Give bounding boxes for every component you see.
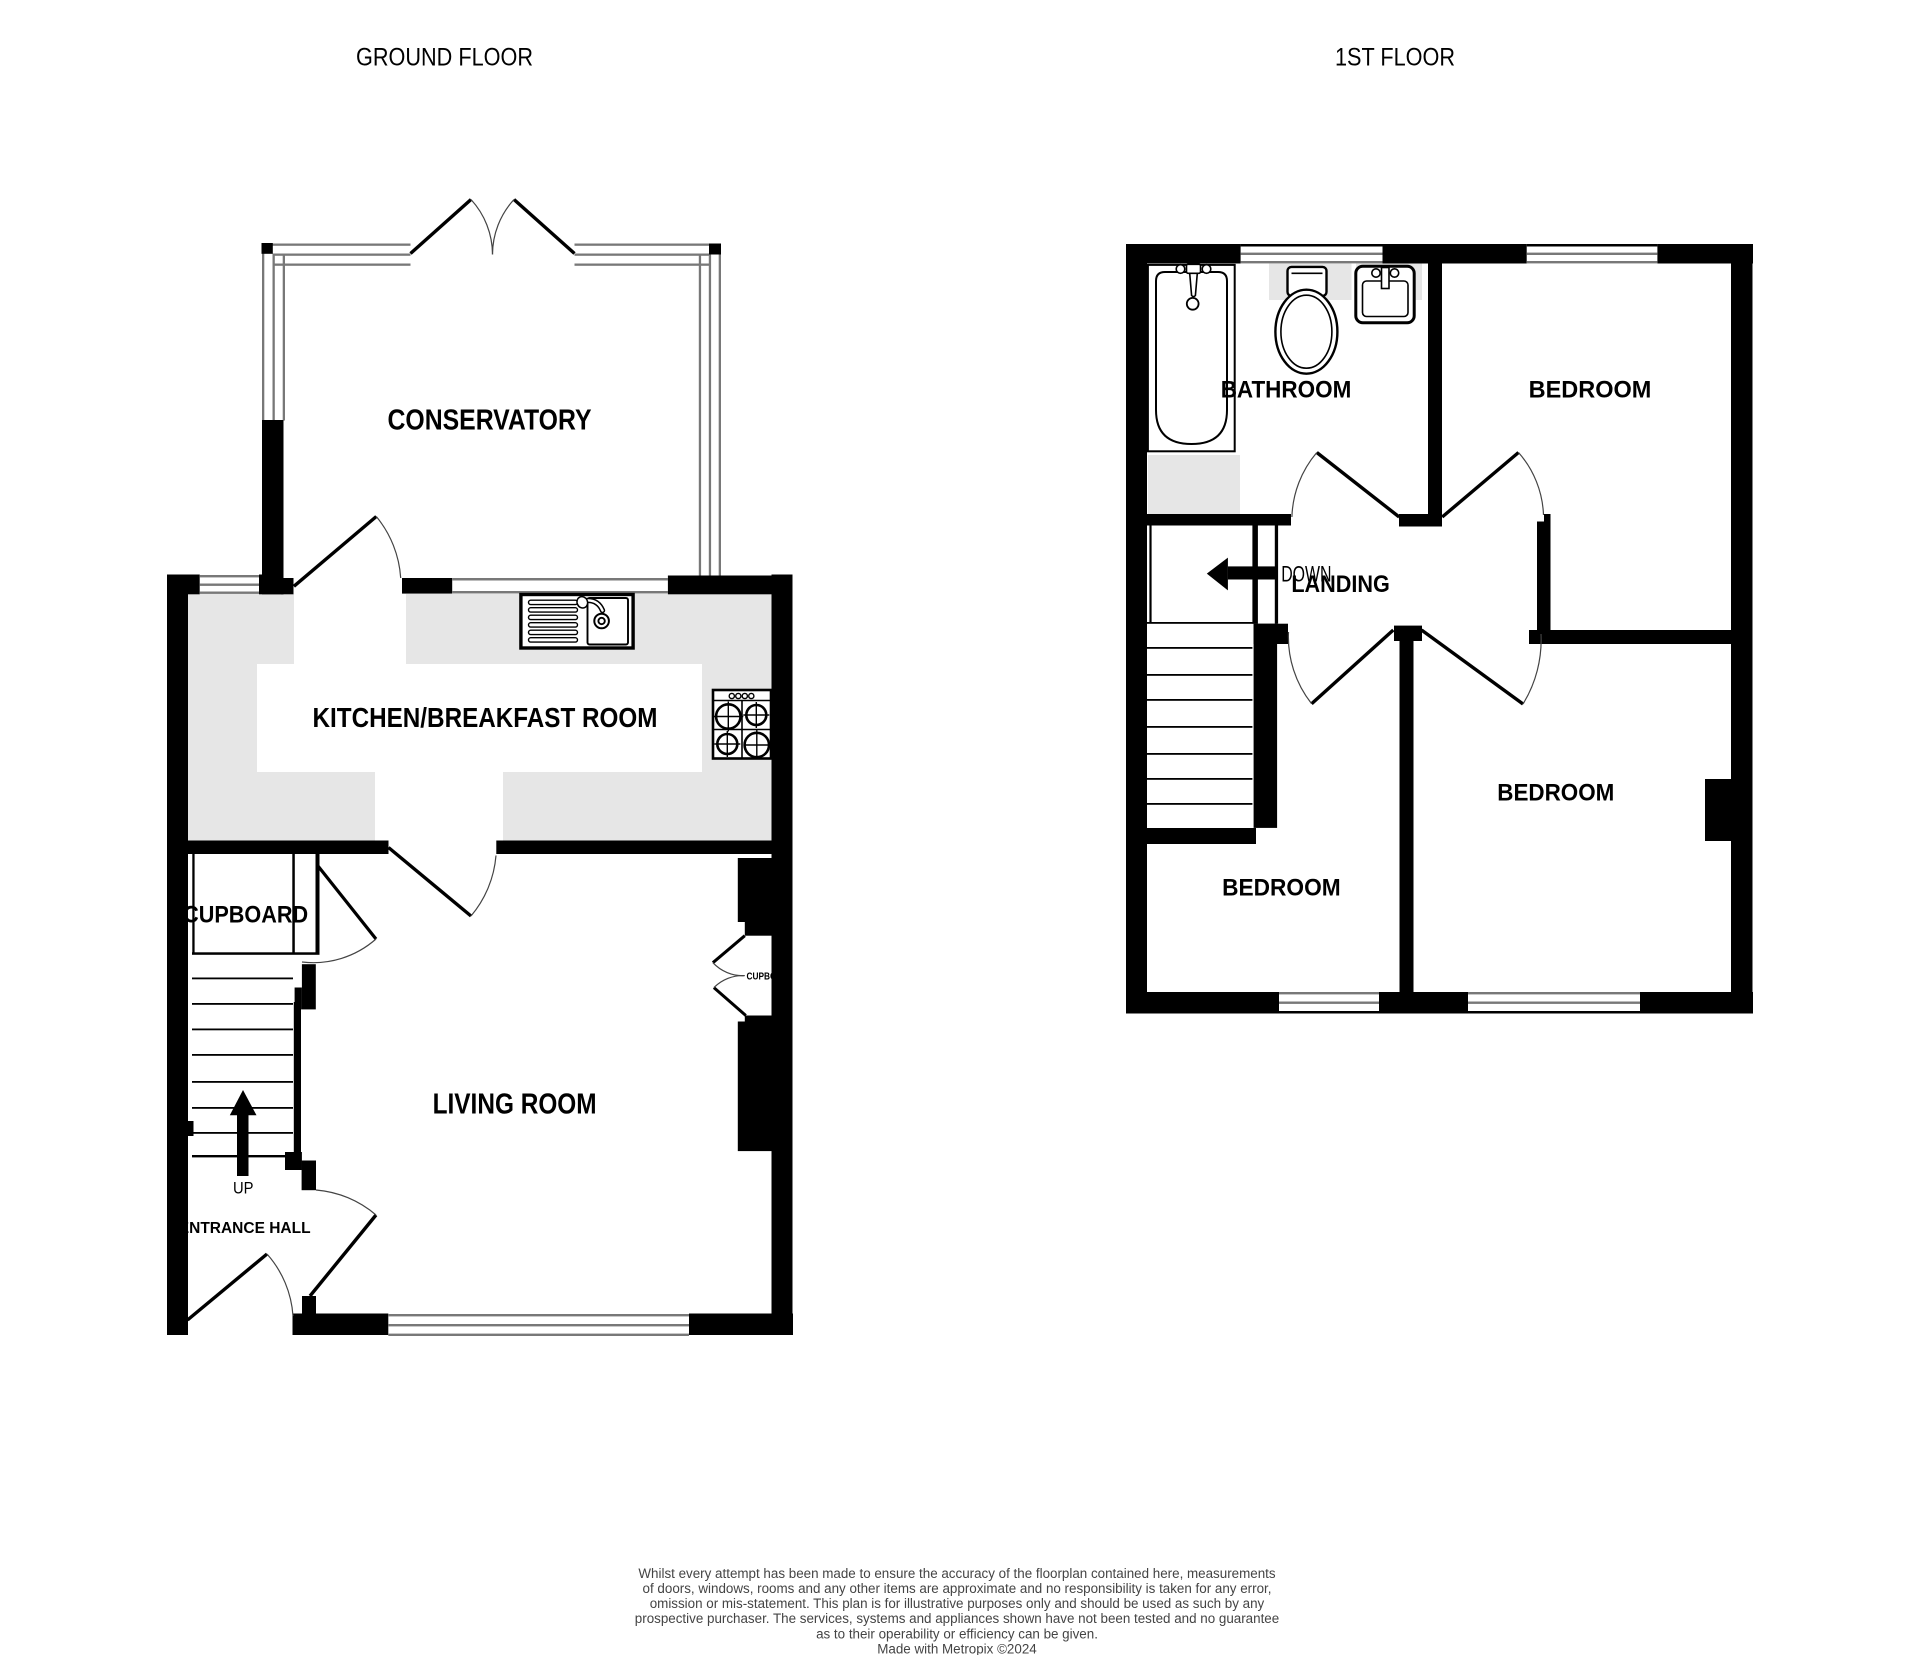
svg-text:GROUND FLOOR: GROUND FLOOR (356, 43, 533, 71)
svg-text:BATHROOM: BATHROOM (1221, 377, 1352, 404)
svg-text:Whilst every attempt has been: Whilst every attempt has been made to en… (638, 1566, 1275, 1581)
svg-text:BEDROOM: BEDROOM (1497, 780, 1614, 807)
svg-text:Made with Metropix ©2024: Made with Metropix ©2024 (877, 1642, 1037, 1655)
svg-text:LIVING ROOM: LIVING ROOM (433, 1088, 597, 1120)
svg-text:LANDING: LANDING (1291, 571, 1390, 598)
svg-text:omission or mis-statement. Thi: omission or mis-statement. This plan is … (650, 1596, 1265, 1611)
svg-text:ENTRANCE HALL: ENTRANCE HALL (179, 1220, 311, 1237)
svg-text:of doors, windows, rooms and a: of doors, windows, rooms and any other i… (643, 1581, 1272, 1596)
svg-text:BEDROOM: BEDROOM (1222, 874, 1341, 901)
svg-text:1ST FLOOR: 1ST FLOOR (1335, 43, 1455, 71)
svg-text:as to their operability or eff: as to their operability or efficiency ca… (816, 1626, 1098, 1641)
svg-text:prospective purchaser. The ser: prospective purchaser. The services, sys… (635, 1611, 1279, 1626)
svg-text:UP: UP (233, 1178, 254, 1197)
svg-text:KITCHEN/BREAKFAST ROOM: KITCHEN/BREAKFAST ROOM (313, 702, 658, 733)
svg-text:CUPBOARD: CUPBOARD (183, 902, 308, 929)
svg-text:BEDROOM: BEDROOM (1529, 377, 1652, 404)
svg-text:CONSERVATORY: CONSERVATORY (388, 405, 592, 437)
